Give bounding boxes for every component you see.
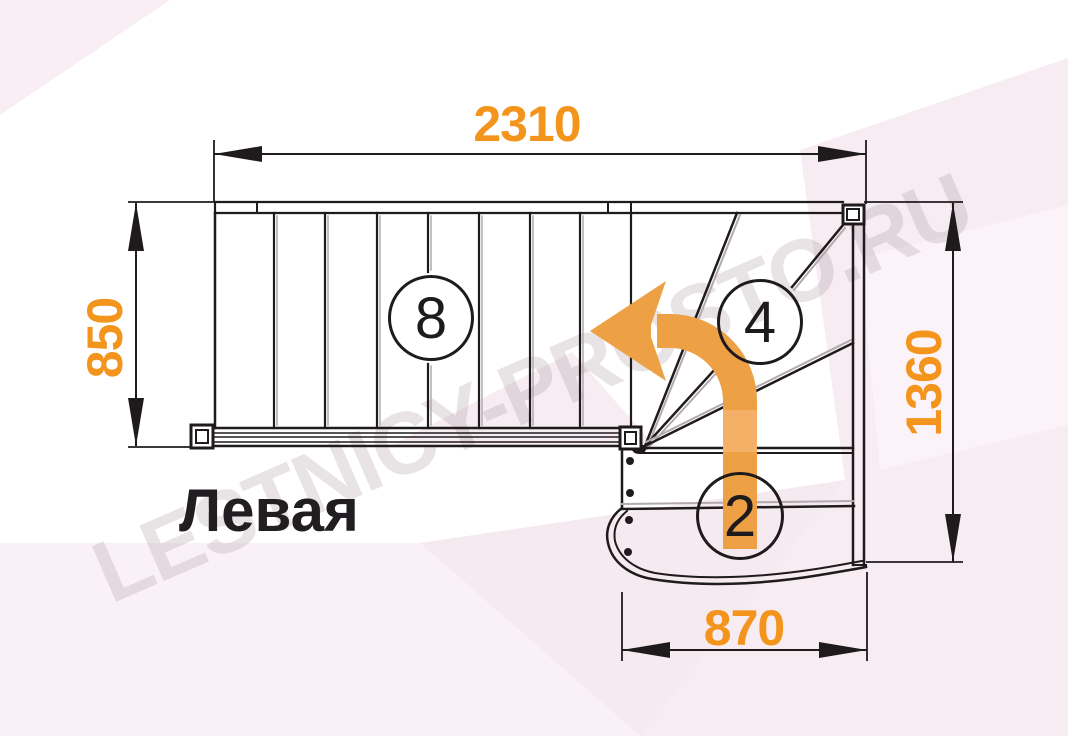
staircase-plan-screenshot: LESTNICY-PROSTO.RU xyxy=(0,0,1068,736)
staircase-plan-drawing: LESTNICY-PROSTO.RU xyxy=(0,0,1068,736)
